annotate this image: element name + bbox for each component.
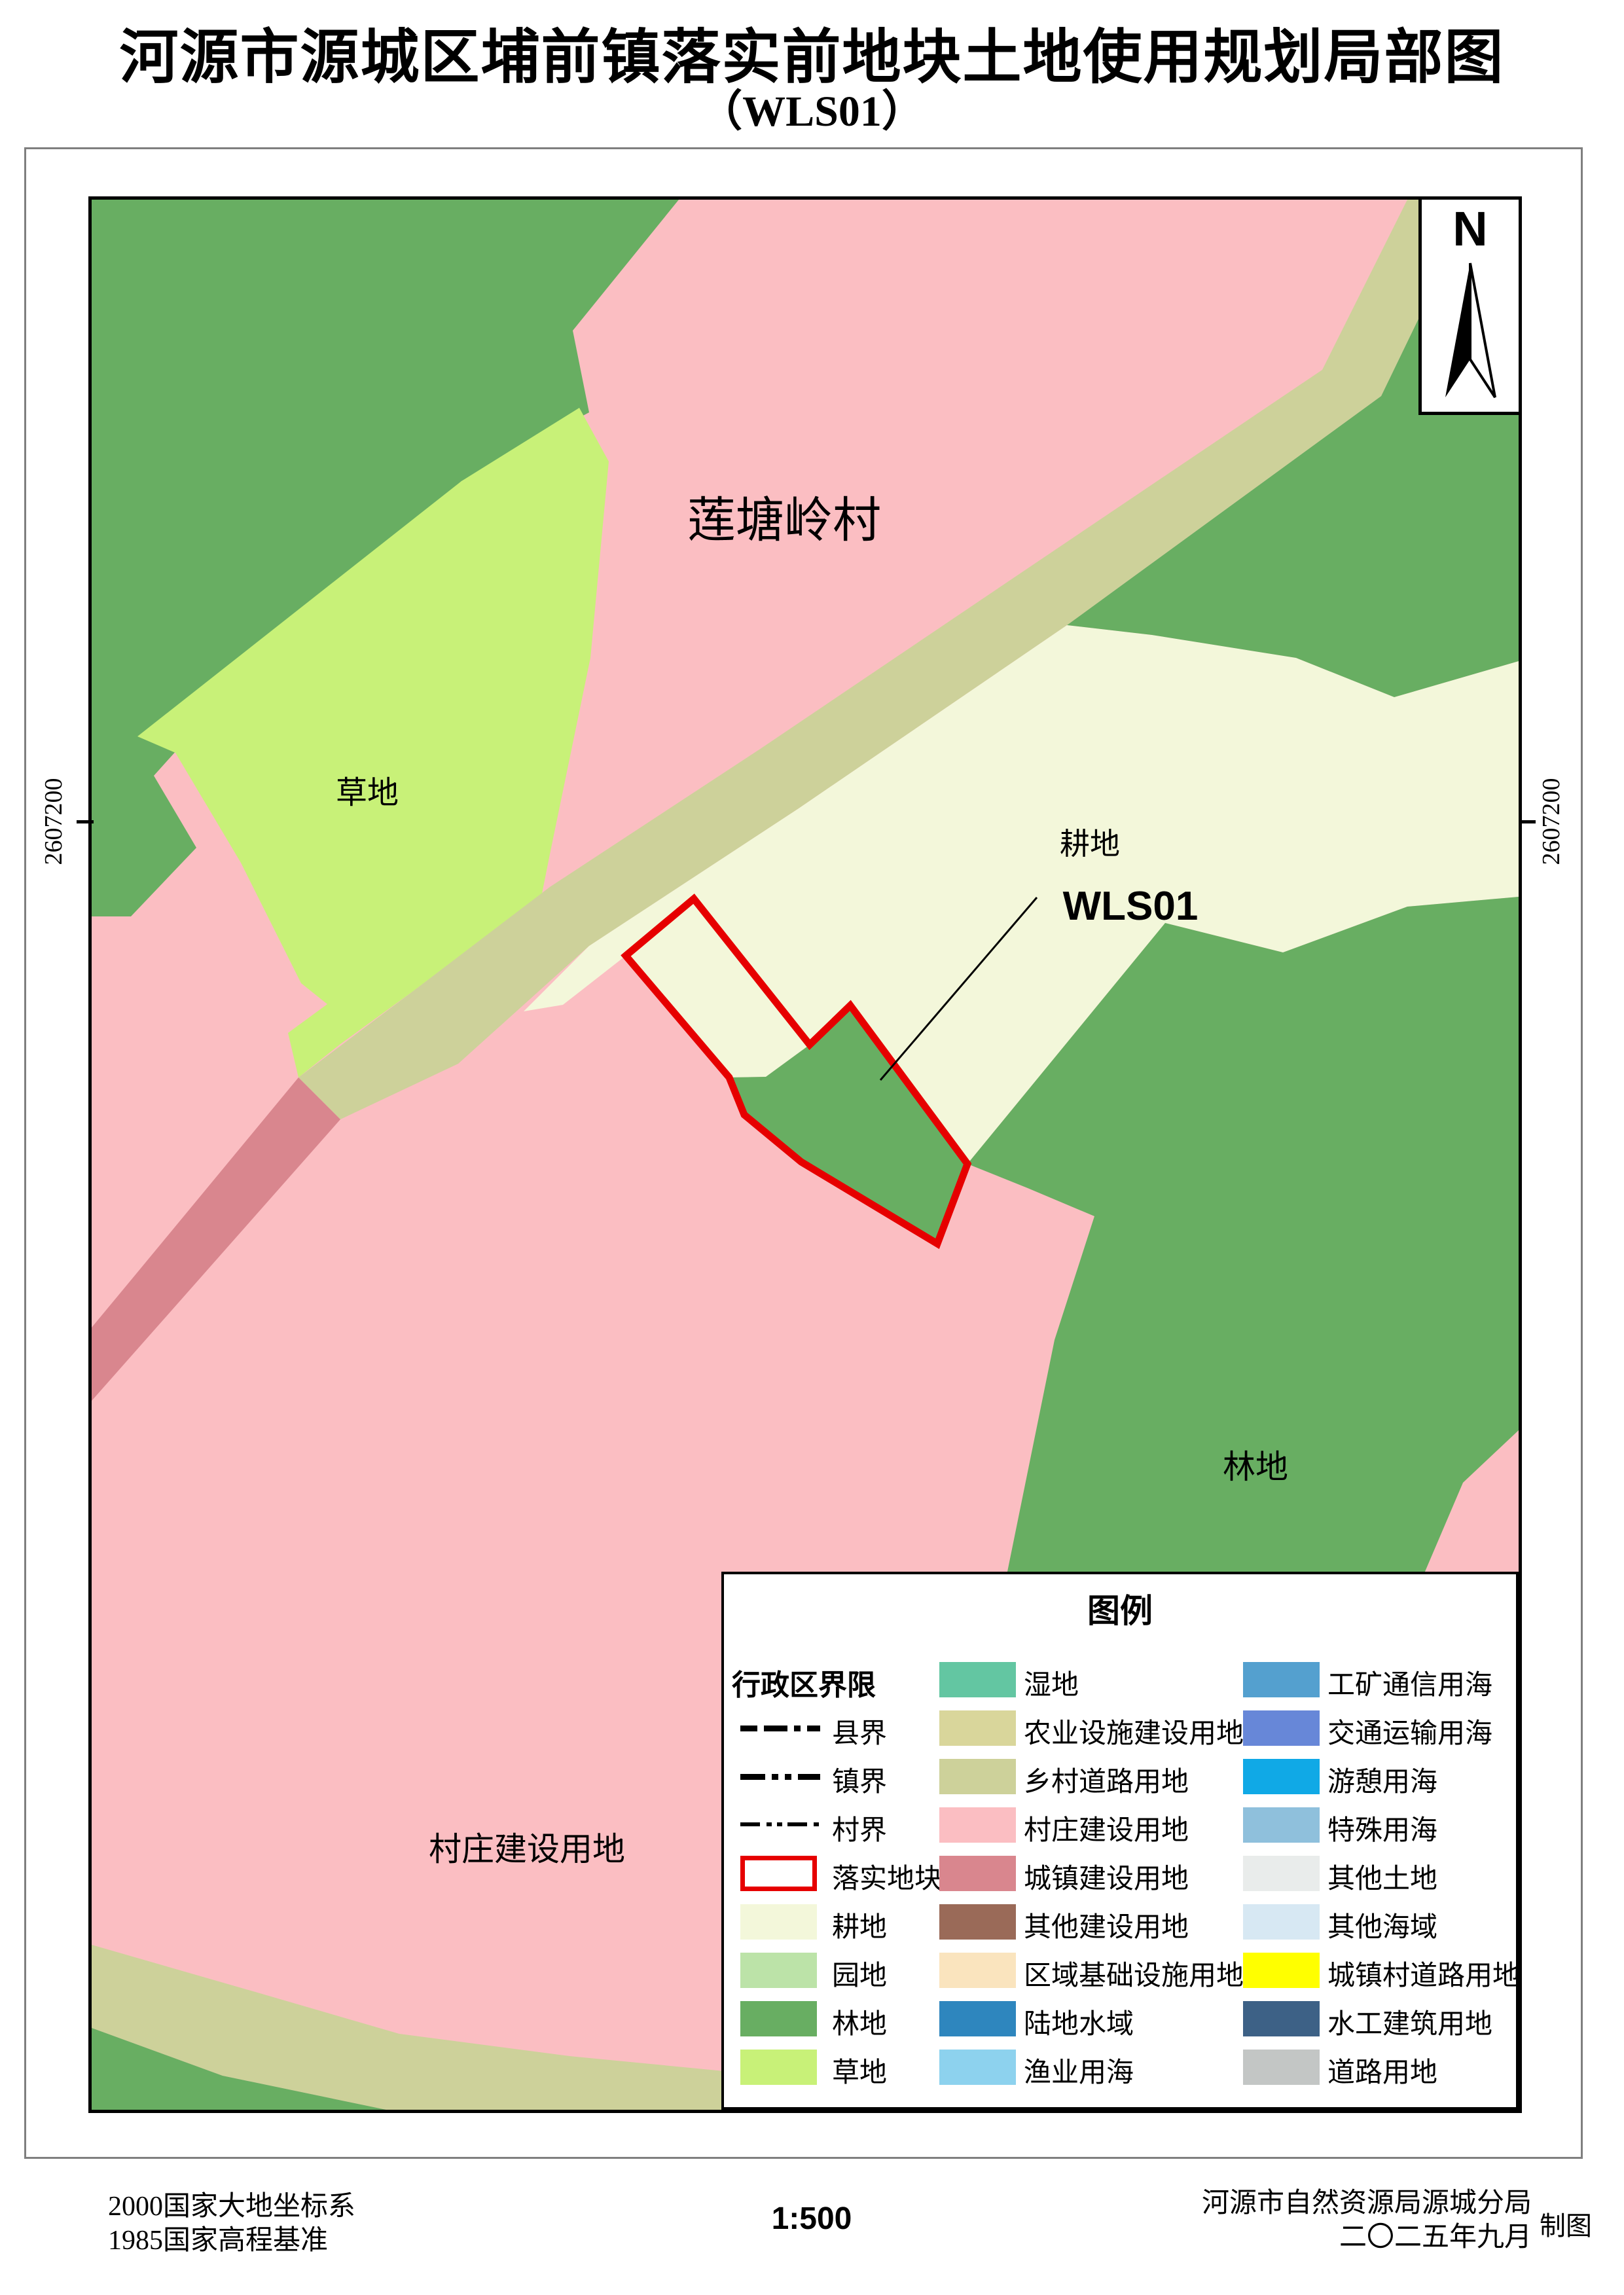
legend-label: 镇界 xyxy=(832,1760,887,1799)
legend-label: 特殊用海 xyxy=(1327,1808,1437,1848)
legend-label: 陆地水域 xyxy=(1024,2002,1134,2042)
legend-section-header: 行政区界限 xyxy=(732,1661,876,1703)
legend-swatch-农业设施建设用地 xyxy=(939,1710,1016,1746)
legend-label: 城镇建设用地 xyxy=(1024,1856,1189,1896)
left-coordinate-tick xyxy=(77,820,94,823)
footer-datum: 2000国家大地坐标系 1985国家高程基准 xyxy=(108,2190,355,2258)
label-village-construction: 村庄建设用地 xyxy=(429,1831,625,1868)
legend-label: 湿地 xyxy=(1024,1663,1079,1703)
legend-boundary-line-county xyxy=(740,1726,820,1731)
label-village-name: 莲塘岭村 xyxy=(687,494,881,548)
legend-boundary-line-town xyxy=(740,1774,820,1780)
footer-agency-block: 河源市自然资源局源城分局 二〇二五年九月 xyxy=(1047,2186,1532,2254)
legend-swatch-其他土地 xyxy=(1243,1856,1320,1891)
legend-swatch-耕地 xyxy=(740,1904,817,1940)
legend-swatch-城镇建设用地 xyxy=(939,1856,1016,1891)
legend-swatch-湿地 xyxy=(939,1662,1016,1697)
legend-label: 交通运输用海 xyxy=(1327,1711,1492,1751)
legend-swatch-村庄建设用地 xyxy=(939,1807,1016,1843)
legend: 图例 行政区界限县界镇界村界落实地块耕地园地林地草地湿地农业设施建设用地乡村道路… xyxy=(721,1572,1519,2110)
label-cropland: 耕地 xyxy=(1060,827,1120,861)
label-grassland: 草地 xyxy=(336,776,399,810)
legend-label: 村界 xyxy=(832,1808,887,1848)
map-scale: 1:500 xyxy=(713,2201,910,2237)
footer-date: 二〇二五年九月 xyxy=(1047,2220,1532,2254)
footer-maker: 制图 xyxy=(1540,2205,1592,2243)
legend-label: 落实地块 xyxy=(832,1856,942,1896)
legend-swatch-特殊用海 xyxy=(1243,1807,1320,1843)
legend-swatch-城镇村道路用地 xyxy=(1243,1953,1320,1988)
legend-label: 林地 xyxy=(832,2002,887,2042)
legend-swatch-林地 xyxy=(740,2001,817,2036)
legend-label: 县界 xyxy=(832,1711,887,1751)
legend-label: 渔业用海 xyxy=(1024,2050,1134,2090)
legend-label: 水工建筑用地 xyxy=(1327,2002,1492,2042)
legend-swatch-道路用地 xyxy=(1243,2050,1320,2085)
footer-datum-line2: 1985国家高程基准 xyxy=(108,2224,355,2258)
footer-datum-line1: 2000国家大地坐标系 xyxy=(108,2190,355,2224)
legend-label: 园地 xyxy=(832,1953,887,1993)
legend-swatch-水工建筑用地 xyxy=(1243,2001,1320,2036)
legend-swatch-区域基础设施用地 xyxy=(939,1953,1016,1988)
north-arrow-box: N xyxy=(1418,196,1522,415)
legend-swatch-园地 xyxy=(740,1953,817,1988)
legend-label: 其他海域 xyxy=(1327,1905,1437,1945)
legend-swatch-其他建设用地 xyxy=(939,1904,1016,1940)
left-coordinate-label: 2607200 xyxy=(39,769,65,874)
legend-swatch-游憩用海 xyxy=(1243,1759,1320,1794)
legend-label: 耕地 xyxy=(832,1905,887,1945)
legend-boundary-line-village xyxy=(740,1822,820,1826)
legend-label: 其他建设用地 xyxy=(1024,1905,1189,1945)
right-coordinate-label: 2607200 xyxy=(1537,769,1563,874)
legend-label: 乡村道路用地 xyxy=(1024,1760,1189,1799)
legend-swatch-草地 xyxy=(740,2050,817,2085)
legend-label: 游憩用海 xyxy=(1327,1760,1437,1799)
legend-label: 区域基础设施用地 xyxy=(1024,1953,1244,1993)
legend-swatch-交通运输用海 xyxy=(1243,1710,1320,1746)
label-forest: 林地 xyxy=(1223,1449,1288,1485)
legend-parcel-symbol xyxy=(740,1856,817,1891)
label-parcel-code: WLS01 xyxy=(1063,884,1199,929)
north-arrow-icon xyxy=(1422,260,1519,404)
legend-label: 城镇村道路用地 xyxy=(1327,1953,1520,1993)
legend-swatch-陆地水域 xyxy=(939,2001,1016,2036)
legend-swatch-工矿通信用海 xyxy=(1243,1662,1320,1697)
north-letter: N xyxy=(1422,201,1519,257)
legend-swatch-乡村道路用地 xyxy=(939,1759,1016,1794)
legend-label: 草地 xyxy=(832,2050,887,2090)
legend-swatch-渔业用海 xyxy=(939,2050,1016,2085)
legend-label: 农业设施建设用地 xyxy=(1024,1711,1244,1751)
page: 河源市源城区埔前镇落实前地块土地使用规划局部图 （WLS01） xyxy=(0,0,1624,2295)
legend-label: 工矿通信用海 xyxy=(1327,1663,1492,1703)
page-subtitle: （WLS01） xyxy=(0,76,1624,139)
legend-label: 道路用地 xyxy=(1327,2050,1437,2090)
footer-agency: 河源市自然资源局源城分局 xyxy=(1047,2186,1532,2220)
legend-swatch-其他海域 xyxy=(1243,1904,1320,1940)
legend-label: 其他土地 xyxy=(1327,1856,1437,1896)
legend-label: 村庄建设用地 xyxy=(1024,1808,1189,1848)
right-coordinate-tick xyxy=(1519,820,1536,823)
legend-title: 图例 xyxy=(724,1585,1516,1632)
